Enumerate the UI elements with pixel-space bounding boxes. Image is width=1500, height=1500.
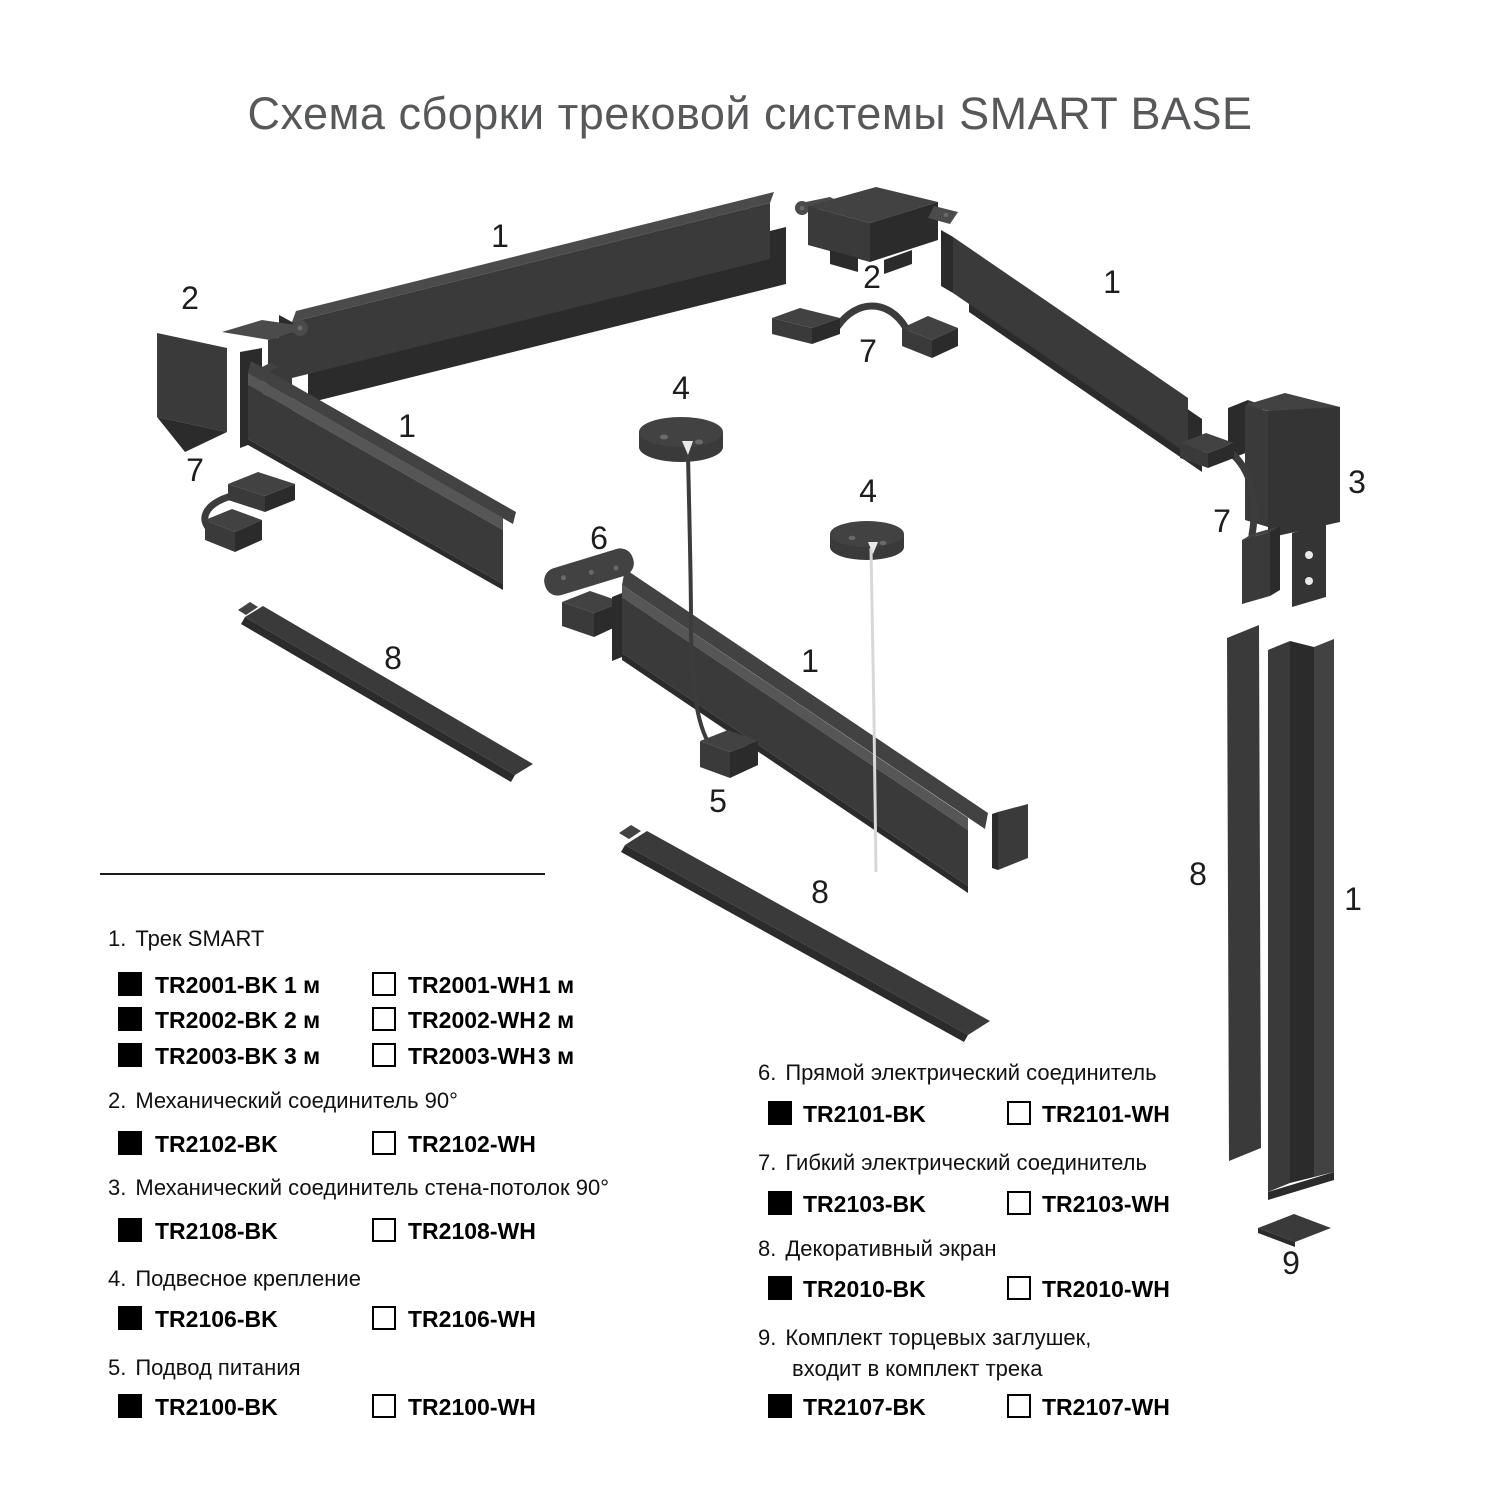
swatch-white	[1007, 1191, 1031, 1215]
pendant-mount-first	[639, 417, 723, 462]
diagram-label-4b: 4	[859, 473, 877, 509]
product-code: TR2001-BK	[155, 972, 278, 999]
legend-item-9-name: Комплект торцевых заглушек,	[785, 1325, 1091, 1350]
diagram-label-2a: 2	[181, 280, 199, 316]
product-code: TR2103-BK	[803, 1191, 926, 1218]
diagram-label-5: 5	[709, 783, 727, 819]
product-code: TR2103-WH	[1042, 1191, 1170, 1218]
product-code: TR2010-WH	[1042, 1276, 1170, 1303]
diagram-label-7b: 7	[186, 452, 204, 488]
diagram-label-9: 9	[1282, 1245, 1300, 1281]
page: Схема сборки трековой системы SMART BASE	[0, 0, 1500, 1500]
product-code: TR2101-BK	[803, 1101, 926, 1128]
swatch-white	[1007, 1101, 1031, 1125]
decorative-screen-left	[238, 602, 533, 782]
legend-item-6-header: 6.Прямой электрический соединитель	[758, 1060, 1157, 1086]
flexible-connector-left	[205, 472, 295, 552]
product-code: TR2003-BK	[155, 1043, 278, 1070]
product-code: TR2010-BK	[803, 1276, 926, 1303]
product-code: TR2107-BK	[803, 1394, 926, 1421]
swatch-black	[768, 1191, 792, 1215]
diagram-label-7c: 7	[1213, 503, 1231, 539]
legend-item-4-header: 4.Подвесное крепление	[108, 1266, 361, 1292]
swatch-black	[118, 1394, 142, 1418]
diagram-label-1d: 1	[801, 643, 819, 679]
product-code: TR2108-WH	[408, 1218, 536, 1245]
product-code: TR2100-BK	[155, 1394, 278, 1421]
product-code: TR2002-BK	[155, 1007, 278, 1034]
legend-item-1-number: 1.	[108, 926, 126, 951]
swatch-white	[372, 972, 396, 996]
swatch-white	[1007, 1276, 1031, 1300]
diagram-label-8c: 8	[1189, 856, 1207, 892]
product-code: TR2102-BK	[155, 1131, 278, 1158]
track-end-plate	[992, 804, 1028, 870]
product-code: TR2100-WH	[408, 1394, 536, 1421]
track-segment-vertical	[1268, 639, 1334, 1200]
legend-item-9-name-line2: входит в комплект трека	[792, 1356, 1042, 1382]
end-cap	[1258, 1214, 1331, 1247]
swatch-white	[372, 1043, 396, 1067]
product-length: 2 м	[538, 1007, 574, 1034]
legend-item-3-name: Механический соединитель стена-потолок 9…	[135, 1175, 609, 1200]
legend-item-1-name: Трек SMART	[135, 926, 264, 951]
legend-item-7-name: Гибкий электрический соединитель	[785, 1150, 1147, 1175]
legend-item-6-number: 6.	[758, 1060, 776, 1085]
legend-item-8-header: 8.Декоративный экран	[758, 1236, 996, 1262]
swatch-white	[372, 1218, 396, 1242]
legend-item-7-number: 7.	[758, 1150, 776, 1175]
diagram-label-1a: 1	[491, 218, 509, 254]
product-length: 1 м	[538, 972, 574, 999]
swatch-black	[118, 1131, 142, 1155]
legend-item-4-name: Подвесное крепление	[135, 1266, 361, 1291]
legend-item-3-number: 3.	[108, 1175, 126, 1200]
legend-item-2-name: Механический соединитель 90°	[135, 1088, 458, 1113]
product-code: TR2003-WH	[408, 1043, 536, 1070]
legend-item-5-name: Подвод питания	[135, 1355, 300, 1380]
track-segment-top-left	[279, 192, 786, 403]
product-code: TR2101-WH	[1042, 1101, 1170, 1128]
pendant-mount-second	[830, 521, 904, 560]
diagram-label-6: 6	[590, 520, 608, 556]
diagram-label-1c: 1	[398, 408, 416, 444]
legend-item-8-number: 8.	[758, 1236, 776, 1261]
swatch-black	[118, 1306, 142, 1330]
swatch-white	[372, 1394, 396, 1418]
legend-item-6-name: Прямой электрический соединитель	[785, 1060, 1156, 1085]
product-code: TR2102-WH	[408, 1131, 536, 1158]
product-code: TR2107-WH	[1042, 1394, 1170, 1421]
legend-item-4-number: 4.	[108, 1266, 126, 1291]
swatch-black	[768, 1394, 792, 1418]
swatch-black	[768, 1276, 792, 1300]
legend-item-7-header: 7.Гибкий электрический соединитель	[758, 1150, 1147, 1176]
legend-item-2-number: 2.	[108, 1088, 126, 1113]
legend-item-5-number: 5.	[108, 1355, 126, 1380]
legend-item-3-header: 3.Механический соединитель стена-потолок…	[108, 1175, 609, 1201]
diagram-label-7a: 7	[859, 333, 877, 369]
legend-item-9-number: 9.	[758, 1325, 776, 1350]
legend-item-2-header: 2.Механический соединитель 90°	[108, 1088, 458, 1114]
swatch-black	[118, 972, 142, 996]
product-length: 1 м	[284, 972, 320, 999]
legend-item-1-header: 1.Трек SMART	[108, 926, 264, 952]
swatch-white	[372, 1131, 396, 1155]
swatch-white	[372, 1007, 396, 1031]
product-code: TR2106-BK	[155, 1306, 278, 1333]
swatch-black	[118, 1218, 142, 1242]
swatch-black	[118, 1007, 142, 1031]
legend-item-8-name: Декоративный экран	[785, 1236, 996, 1261]
legend-item-5-header: 5.Подвод питания	[108, 1355, 301, 1381]
diagram-label-4a: 4	[672, 370, 690, 406]
legend-item-9-header: 9.Комплект торцевых заглушек,	[758, 1325, 1091, 1351]
swatch-black	[768, 1101, 792, 1125]
product-length: 3 м	[538, 1043, 574, 1070]
product-length: 3 м	[284, 1043, 320, 1070]
swatch-white	[372, 1306, 396, 1330]
product-code: TR2108-BK	[155, 1218, 278, 1245]
diagram-label-2b: 2	[863, 259, 881, 295]
diagram-label-3: 3	[1348, 464, 1366, 500]
track-segment-left	[240, 361, 516, 590]
product-code: TR2002-WH	[408, 1007, 536, 1034]
product-code: TR2001-WH	[408, 972, 536, 999]
diagram-label-8a: 8	[384, 640, 402, 676]
decorative-screen-vertical	[1227, 625, 1261, 1161]
swatch-white	[1007, 1394, 1031, 1418]
track-segment-top-right	[941, 229, 1202, 472]
swatch-black	[118, 1043, 142, 1067]
product-code: TR2106-WH	[408, 1306, 536, 1333]
diagram-label-8b: 8	[811, 874, 829, 910]
diagram-label-1e: 1	[1344, 881, 1362, 917]
product-length: 2 м	[284, 1007, 320, 1034]
diagram-label-1b: 1	[1103, 264, 1121, 300]
